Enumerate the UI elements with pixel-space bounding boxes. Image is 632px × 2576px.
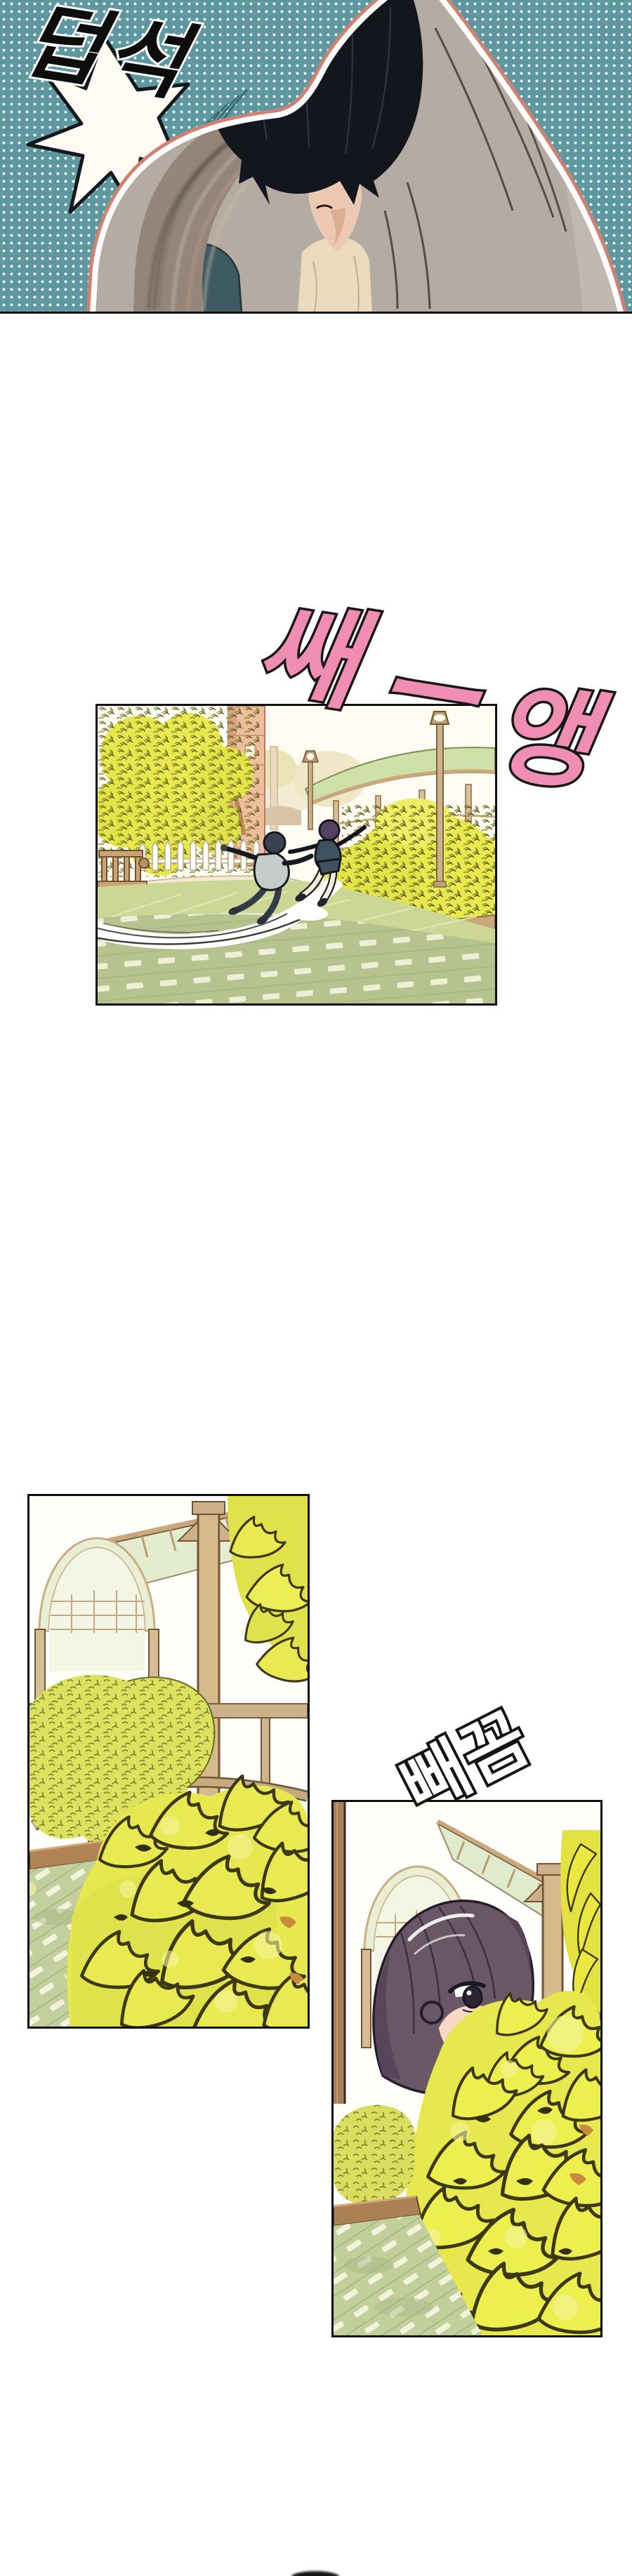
panel-peek [331,1800,603,2337]
impact-art: 덥석 [0,0,632,312]
panel-park [96,704,497,1006]
panel-impact: 덥석 [0,0,632,314]
comic-page: 덥석 [0,0,632,2576]
bottom-ellipse-shape [291,2571,339,2576]
panel-pergola [27,1494,310,2029]
wood-post-left [334,1802,345,2104]
bush-textured-left [334,2105,416,2205]
sfx-grab: 덥석 [8,0,219,112]
sfx-grab-text: 덥석 [8,0,219,112]
pergola-art [29,1496,308,2027]
park-art [98,706,495,1003]
girl-hair-curl [421,2002,442,2023]
sfx-whoosh-char-3: 앵 [483,666,614,809]
peek-art [334,1802,600,2335]
